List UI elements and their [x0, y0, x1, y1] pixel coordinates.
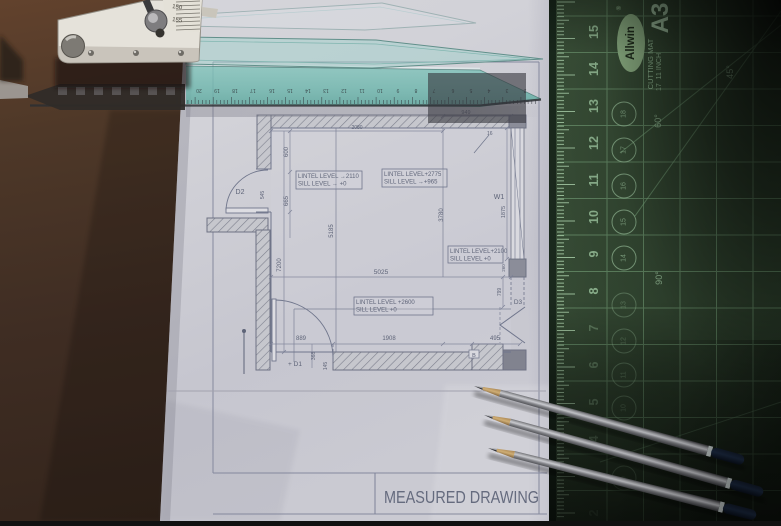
- svg-text:1875: 1875: [501, 206, 507, 218]
- svg-text:665: 665: [284, 195, 290, 206]
- svg-text:889: 889: [296, 336, 307, 342]
- svg-text:B: B: [472, 353, 476, 359]
- svg-text:1908: 1908: [382, 336, 396, 342]
- svg-text:20: 20: [196, 87, 202, 93]
- svg-text:495: 495: [490, 336, 501, 342]
- svg-text:16: 16: [487, 131, 493, 137]
- svg-text:18: 18: [232, 87, 238, 93]
- svg-text:SILL LEVEL → +0: SILL LEVEL → +0: [298, 182, 347, 188]
- svg-text:145: 145: [323, 362, 329, 371]
- svg-text:19: 19: [214, 87, 220, 93]
- svg-text:2080: 2080: [351, 125, 362, 131]
- svg-text:7200: 7200: [277, 258, 283, 272]
- svg-text:15: 15: [287, 87, 293, 93]
- svg-text:LINTEL LEVEL →2110: LINTEL LEVEL →2110: [298, 174, 359, 180]
- svg-text:+ D1: + D1: [288, 361, 302, 368]
- svg-text:14: 14: [305, 87, 311, 93]
- svg-text:368: 368: [311, 352, 317, 361]
- svg-text:5185: 5185: [329, 224, 335, 238]
- svg-text:LINTEL LEVEL +2600: LINTEL LEVEL +2600: [356, 300, 415, 306]
- svg-text:SILL LEVEL +0: SILL LEVEL +0: [450, 257, 491, 263]
- svg-text:10: 10: [377, 87, 383, 93]
- svg-text:D3: D3: [514, 299, 523, 306]
- svg-text:13: 13: [323, 87, 329, 93]
- svg-text:MEASURED DRAWING: MEASURED DRAWING: [384, 487, 539, 507]
- svg-text:600: 600: [284, 146, 290, 157]
- svg-text:SILL LEVEL +0: SILL LEVEL +0: [356, 308, 397, 314]
- svg-text:3780: 3780: [439, 208, 445, 222]
- svg-text:SILL LEVEL →+965: SILL LEVEL →+965: [384, 180, 438, 186]
- svg-text:9: 9: [396, 87, 399, 93]
- svg-text:W1: W1: [494, 194, 505, 201]
- svg-text:D2: D2: [236, 189, 245, 196]
- svg-text:260: 260: [501, 264, 506, 272]
- svg-text:16: 16: [269, 87, 275, 93]
- svg-text:11: 11: [359, 87, 364, 93]
- svg-text:799: 799: [497, 288, 503, 297]
- svg-text:8: 8: [414, 87, 417, 93]
- svg-text:17: 17: [250, 87, 256, 93]
- svg-text:LINTEL LEVEL+2775: LINTEL LEVEL+2775: [384, 172, 442, 178]
- svg-text:545: 545: [260, 191, 266, 200]
- svg-text:12: 12: [341, 87, 347, 93]
- svg-text:LINTEL LEVEL+2100: LINTEL LEVEL+2100: [450, 249, 508, 255]
- svg-text:5025: 5025: [374, 269, 389, 276]
